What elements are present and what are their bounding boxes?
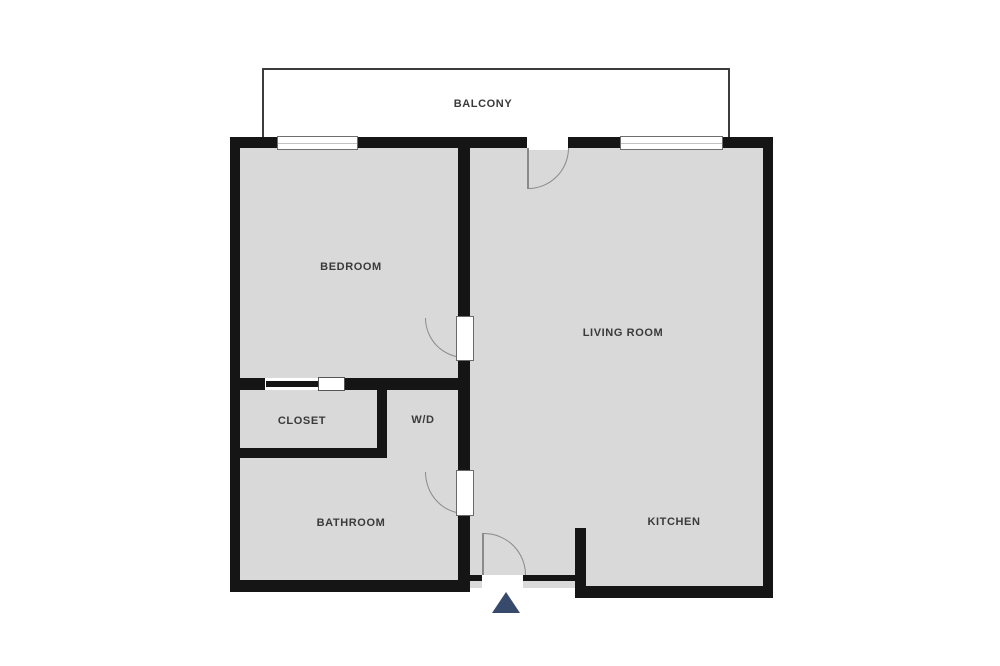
wall-entry-jamb-right	[523, 575, 575, 581]
wall-divider-lower	[458, 515, 470, 592]
window-mullion	[278, 143, 357, 144]
closet-pocket-door-panel	[266, 381, 320, 387]
wall-closet-bottom	[230, 448, 387, 458]
wall-wd-left	[377, 390, 387, 453]
bathroom-label: BATHROOM	[317, 517, 386, 529]
wall-closet-top-right	[345, 378, 470, 390]
wall-bottom-left	[230, 580, 467, 592]
bedroom-label: BEDROOM	[320, 261, 382, 273]
living-room-label: LIVING ROOM	[583, 327, 664, 339]
wall-divider-upper	[458, 137, 470, 316]
floor-plan: BALCONY BEDROOM LIVING ROOM CLO	[0, 0, 1000, 666]
bedroom-door	[456, 316, 474, 361]
bedroom-window	[277, 136, 358, 150]
window-mullion	[621, 143, 722, 144]
wall-left	[230, 137, 240, 592]
wall-right	[763, 137, 773, 598]
bathroom-door	[456, 470, 474, 516]
wall-closet-top-left	[230, 378, 265, 390]
kitchen-label: KITCHEN	[647, 516, 700, 528]
closet-pocket-door-cavity	[318, 377, 345, 391]
entrance-arrow-icon	[492, 592, 520, 613]
balcony-label: BALCONY	[454, 98, 513, 110]
wall-bottom-kitchen	[575, 586, 773, 598]
living-room-window	[620, 136, 723, 150]
closet-label: CLOSET	[278, 415, 326, 427]
wall-divider-middle	[458, 360, 470, 470]
wd-label: W/D	[411, 414, 434, 426]
